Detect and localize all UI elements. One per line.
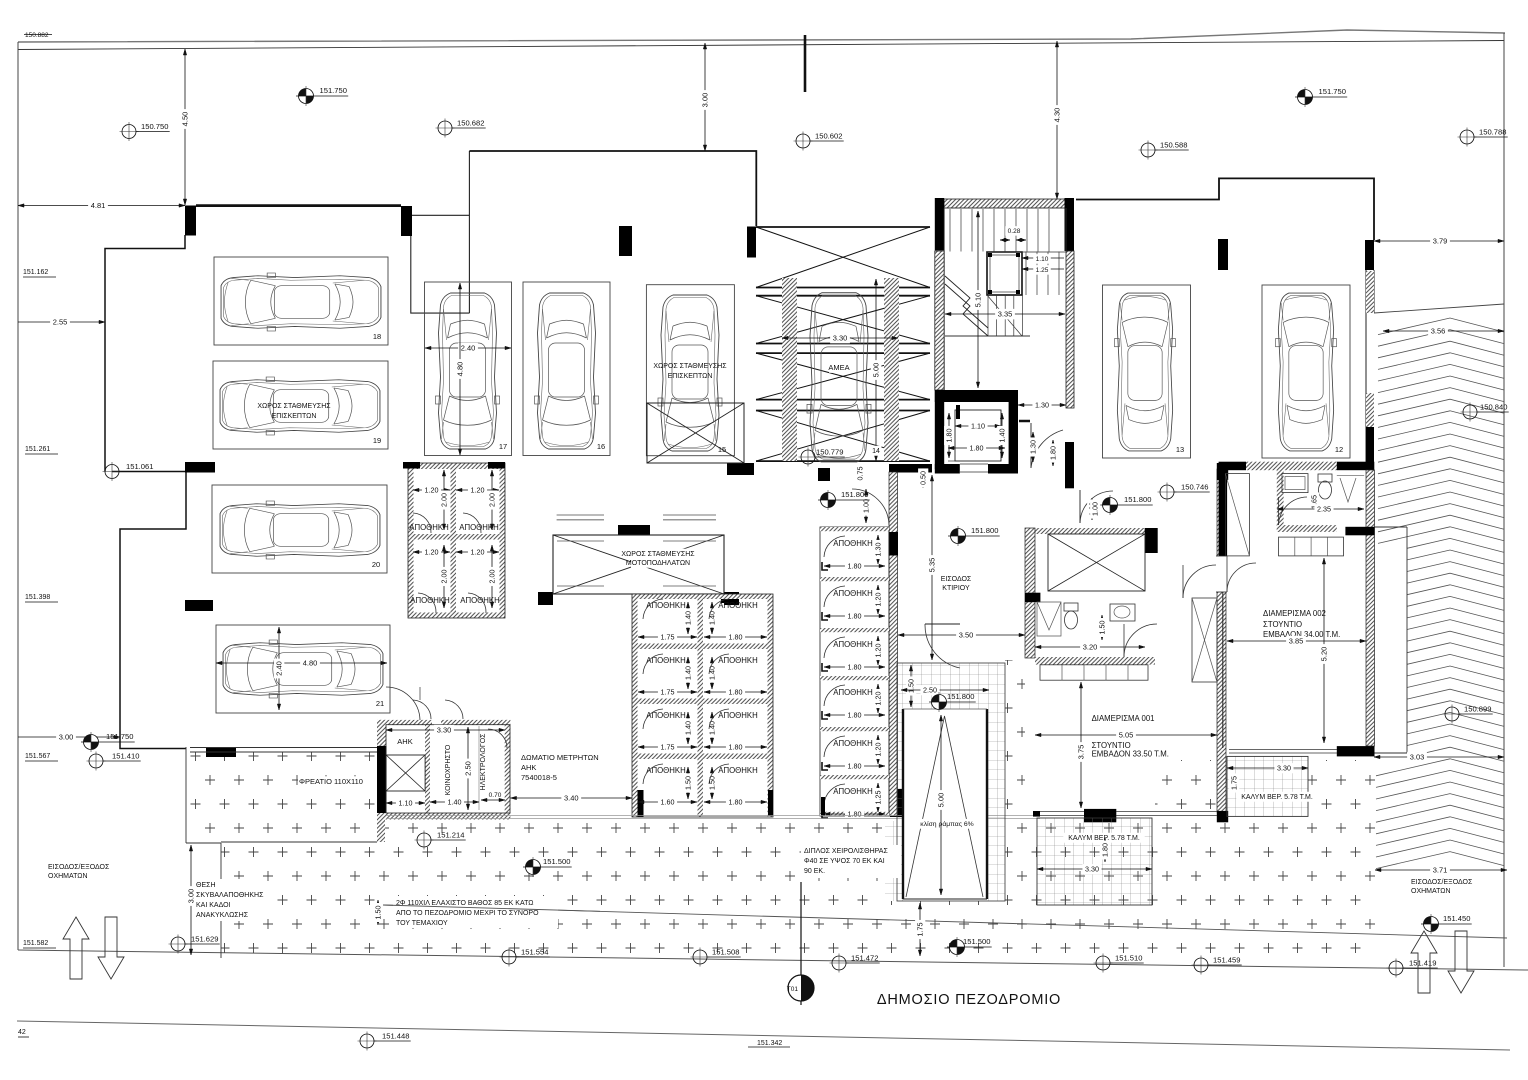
svg-text:3.30: 3.30 <box>1277 764 1291 773</box>
svg-text:151.500: 151.500 <box>963 937 990 946</box>
svg-text:150.682: 150.682 <box>457 119 484 128</box>
svg-text:ΑΠΟΘΗΚΗ: ΑΠΟΘΗΚΗ <box>718 601 757 610</box>
svg-text:ΔΙΑΜΕΡΙΣΜΑ 002: ΔΙΑΜΕΡΙΣΜΑ 002 <box>1263 609 1326 618</box>
svg-text:151.342: 151.342 <box>757 1040 782 1047</box>
svg-text:2.35: 2.35 <box>1317 505 1331 514</box>
svg-text:4.80: 4.80 <box>456 362 465 377</box>
svg-text:151.061: 151.061 <box>126 462 153 471</box>
svg-text:κλίση ράμπας 6%: κλίση ράμπας 6% <box>920 820 973 828</box>
svg-text:3.30: 3.30 <box>1085 865 1099 874</box>
svg-text:1.10: 1.10 <box>971 422 985 431</box>
svg-text:1.40: 1.40 <box>684 666 693 680</box>
svg-text:151.508: 151.508 <box>712 948 739 957</box>
svg-text:1.20: 1.20 <box>425 548 439 557</box>
svg-text:1.80: 1.80 <box>848 762 862 771</box>
svg-text:151.214: 151.214 <box>437 831 464 840</box>
svg-text:ΑΠΟΘΗΚΗ: ΑΠΟΘΗΚΗ <box>833 640 872 649</box>
svg-text:1.00: 1.00 <box>862 499 871 513</box>
svg-text:1.20: 1.20 <box>874 692 883 706</box>
svg-text:1.40: 1.40 <box>684 611 693 625</box>
svg-text:151.750: 151.750 <box>106 732 133 741</box>
svg-text:ΚΟΙΝΟΧΡΗΣΤΟ: ΚΟΙΝΟΧΡΗΣΤΟ <box>445 744 452 795</box>
svg-text:150.899: 150.899 <box>1464 705 1491 714</box>
svg-text:1.80: 1.80 <box>848 810 862 819</box>
svg-text:150.788: 150.788 <box>1479 128 1506 137</box>
svg-text:ΑΗΚ: ΑΗΚ <box>521 763 536 772</box>
svg-text:ΕΠΙΣΚΕΠΤΩΝ: ΕΠΙΣΚΕΠΤΩΝ <box>668 373 713 380</box>
svg-text:1.10: 1.10 <box>399 799 413 808</box>
svg-text:ΧΩΡΟΣ ΣΤΑΘΜΕΥΣΗΣ: ΧΩΡΟΣ ΣΤΑΘΜΕΥΣΗΣ <box>621 551 695 558</box>
svg-text:2.00: 2.00 <box>488 570 497 584</box>
svg-text:1.50: 1.50 <box>684 776 693 790</box>
svg-text:1.75: 1.75 <box>916 923 925 937</box>
svg-text:1.25: 1.25 <box>874 791 883 805</box>
svg-text:151.554: 151.554 <box>521 948 548 957</box>
svg-text:151.459: 151.459 <box>1213 956 1240 965</box>
svg-text:3.03: 3.03 <box>1410 753 1425 762</box>
svg-text:ΑΜΕΑ: ΑΜΕΑ <box>828 363 849 372</box>
svg-text:18: 18 <box>373 332 381 341</box>
svg-text:2.00: 2.00 <box>440 570 449 584</box>
svg-text:4.30: 4.30 <box>1053 108 1062 123</box>
svg-text:2.40: 2.40 <box>275 661 284 676</box>
svg-text:151.410: 151.410 <box>112 752 139 761</box>
svg-text:3.35: 3.35 <box>998 310 1013 319</box>
svg-text:1.30: 1.30 <box>1035 401 1049 410</box>
svg-text:3.79: 3.79 <box>1433 237 1448 246</box>
svg-text:17: 17 <box>499 442 507 451</box>
svg-text:151.500: 151.500 <box>543 857 570 866</box>
svg-text:0.70: 0.70 <box>489 792 502 799</box>
svg-text:151.261: 151.261 <box>25 446 50 453</box>
svg-text:151.510: 151.510 <box>1115 954 1142 963</box>
svg-text:5.00: 5.00 <box>937 793 946 808</box>
svg-text:150.750: 150.750 <box>141 122 168 131</box>
svg-text:ΑΠΟΘΗΚΗ: ΑΠΟΘΗΚΗ <box>833 739 872 748</box>
svg-text:20: 20 <box>372 560 380 569</box>
svg-text:ΑΠΟΘΗΚΗ: ΑΠΟΘΗΚΗ <box>833 688 872 697</box>
svg-text:4.81: 4.81 <box>91 201 106 210</box>
svg-text:1.40: 1.40 <box>998 429 1007 443</box>
svg-text:7540018-5: 7540018-5 <box>521 773 557 782</box>
svg-text:21: 21 <box>376 699 384 708</box>
svg-text:150.588: 150.588 <box>1160 141 1187 150</box>
svg-text:90 ΕΚ.: 90 ΕΚ. <box>804 868 825 875</box>
svg-text:3.30: 3.30 <box>833 334 848 343</box>
svg-text:ΔΙΠΛΟΣ ΧΕΙΡΟΛΙΣΘΗΡΑΣ: ΔΙΠΛΟΣ ΧΕΙΡΟΛΙΣΘΗΡΑΣ <box>804 848 888 855</box>
svg-text:151.750: 151.750 <box>320 86 347 95</box>
svg-text:151.472: 151.472 <box>851 954 878 963</box>
svg-text:3.20: 3.20 <box>1083 643 1098 652</box>
svg-text:16: 16 <box>597 442 605 451</box>
svg-text:3.56: 3.56 <box>1431 327 1446 336</box>
svg-text:1.30: 1.30 <box>874 543 883 557</box>
svg-text:1.50: 1.50 <box>374 906 383 920</box>
svg-text:5.35: 5.35 <box>928 558 937 573</box>
svg-text:ΑΗΚ: ΑΗΚ <box>397 737 412 746</box>
svg-text:151.750: 151.750 <box>1319 87 1346 96</box>
svg-text:4.50: 4.50 <box>181 112 190 127</box>
svg-text:1.80: 1.80 <box>729 743 743 752</box>
svg-text:19: 19 <box>373 436 381 445</box>
svg-text:1.00: 1.00 <box>1091 502 1100 516</box>
svg-text:ΑΠΟΘΗΚΗ: ΑΠΟΘΗΚΗ <box>460 596 499 605</box>
svg-text:1.20: 1.20 <box>874 593 883 607</box>
svg-text:151.800: 151.800 <box>947 692 974 701</box>
svg-text:ΑΠΟΘΗΚΗ: ΑΠΟΘΗΚΗ <box>833 787 872 796</box>
svg-text:ΔΗΜΟΣΙΟ ΠΕΖΟΔΡΟΜΙΟ: ΔΗΜΟΣΙΟ ΠΕΖΟΔΡΟΜΙΟ <box>877 992 1061 1008</box>
svg-text:3.71: 3.71 <box>1433 866 1448 875</box>
svg-text:150.746: 150.746 <box>1181 483 1208 492</box>
svg-text:ΑΝΑΚΥΚΛΩΣΗΣ: ΑΝΑΚΥΚΛΩΣΗΣ <box>196 912 249 919</box>
svg-text:ΕΙΣΟΔΟΣ/ΕΞΟΔΟΣ: ΕΙΣΟΔΟΣ/ΕΞΟΔΟΣ <box>1411 879 1473 886</box>
svg-text:150.602: 150.602 <box>815 132 842 141</box>
svg-text:ΘΕΣΗ: ΘΕΣΗ <box>196 882 216 889</box>
svg-text:151.567: 151.567 <box>25 753 50 760</box>
svg-text:T01: T01 <box>787 986 799 993</box>
svg-text:1.20: 1.20 <box>425 486 439 495</box>
svg-text:12: 12 <box>1335 445 1343 454</box>
svg-text:1.80: 1.80 <box>729 798 743 807</box>
svg-text:4.80: 4.80 <box>303 659 318 668</box>
svg-text:3.85: 3.85 <box>1289 637 1304 646</box>
svg-text:1.80: 1.80 <box>970 444 984 453</box>
svg-text:1.50: 1.50 <box>907 679 916 693</box>
svg-text:0.28: 0.28 <box>1008 228 1021 235</box>
svg-text:ΕΙΣΟΔΟΣ/ΕΞΟΔΟΣ: ΕΙΣΟΔΟΣ/ΕΞΟΔΟΣ <box>48 864 110 871</box>
svg-text:1.75: 1.75 <box>1230 776 1239 790</box>
svg-text:ΕΠΙΣΚΕΠΤΩΝ: ΕΠΙΣΚΕΠΤΩΝ <box>272 413 317 420</box>
svg-text:151.800: 151.800 <box>841 490 868 499</box>
svg-text:151.398: 151.398 <box>25 594 50 601</box>
svg-text:42: 42 <box>18 1029 26 1036</box>
svg-text:2.50: 2.50 <box>923 686 937 695</box>
svg-text:ΣΤΟΥΝΤΙΟ: ΣΤΟΥΝΤΙΟ <box>1263 620 1302 629</box>
svg-text:ΑΠΟ ΤΟ ΠΕΖΟΔΡΟΜΙΟ ΜΕΧΡΙ ΤΟ ΣΥΝ: ΑΠΟ ΤΟ ΠΕΖΟΔΡΟΜΙΟ ΜΕΧΡΙ ΤΟ ΣΥΝΟΡΟ <box>396 910 539 917</box>
svg-text:1.80: 1.80 <box>1049 446 1058 460</box>
svg-text:150.779: 150.779 <box>816 448 843 457</box>
svg-text:151.582: 151.582 <box>23 940 48 947</box>
svg-text:1.40: 1.40 <box>684 721 693 735</box>
svg-text:2.00: 2.00 <box>440 493 449 507</box>
svg-text:151.800: 151.800 <box>1124 495 1151 504</box>
svg-text:ΚΑΙ ΚΑΔΟΙ: ΚΑΙ ΚΑΔΟΙ <box>196 902 231 909</box>
svg-text:3.00: 3.00 <box>701 93 710 108</box>
svg-text:2.40: 2.40 <box>461 344 476 353</box>
svg-text:Φ40 ΣΕ ΥΨΟΣ 70 ΕΚ ΚΑΙ: Φ40 ΣΕ ΥΨΟΣ 70 ΕΚ ΚΑΙ <box>804 858 885 865</box>
svg-text:5.10: 5.10 <box>974 293 983 308</box>
svg-text:ΑΠΟΘΗΚΗ: ΑΠΟΘΗΚΗ <box>718 711 757 720</box>
svg-text:3.50: 3.50 <box>959 631 974 640</box>
svg-text:1.80: 1.80 <box>1101 843 1110 857</box>
svg-text:1.50: 1.50 <box>1098 621 1107 635</box>
svg-text:3.75: 3.75 <box>1077 745 1086 760</box>
svg-text:151.162: 151.162 <box>23 269 48 276</box>
svg-text:151.629: 151.629 <box>191 935 218 944</box>
svg-text:1.20: 1.20 <box>874 743 883 757</box>
svg-text:ΚΑΛΥΜ ΒΕΡ. 5.78 Τ.Μ.: ΚΑΛΥΜ ΒΕΡ. 5.78 Τ.Μ. <box>1241 794 1313 801</box>
svg-text:151.419: 151.419 <box>1409 959 1436 968</box>
svg-text:ΑΠΟΘΗΚΗ: ΑΠΟΘΗΚΗ <box>833 539 872 548</box>
svg-text:ΑΠΟΘΗΚΗ: ΑΠΟΘΗΚΗ <box>718 656 757 665</box>
svg-text:1.80: 1.80 <box>729 633 743 642</box>
svg-text:150.840: 150.840 <box>1480 403 1507 412</box>
svg-text:0.75: 0.75 <box>856 467 865 481</box>
svg-text:151.800: 151.800 <box>971 526 998 535</box>
svg-text:1.20: 1.20 <box>471 548 485 557</box>
svg-text:ΟΧΗΜΑΤΩΝ: ΟΧΗΜΑΤΩΝ <box>1411 888 1451 895</box>
svg-text:ΚΤΙΡΙΟΥ: ΚΤΙΡΙΟΥ <box>942 585 970 592</box>
svg-text:2.55: 2.55 <box>53 318 68 327</box>
svg-text:ΔΩΜΑΤΙΟ ΜΕΤΡΗΤΩΝ: ΔΩΜΑΤΙΟ ΜΕΤΡΗΤΩΝ <box>521 753 599 762</box>
svg-text:151.448: 151.448 <box>382 1032 409 1041</box>
svg-text:13: 13 <box>1176 445 1184 454</box>
svg-text:1.20: 1.20 <box>471 486 485 495</box>
svg-text:2.50: 2.50 <box>464 761 473 776</box>
svg-text:1.80: 1.80 <box>848 663 862 672</box>
svg-text:1.80: 1.80 <box>945 429 954 443</box>
svg-text:5.00: 5.00 <box>872 363 881 378</box>
svg-text:1.30: 1.30 <box>1029 440 1038 454</box>
svg-text:1.80: 1.80 <box>848 612 862 621</box>
svg-text:1.80: 1.80 <box>729 688 743 697</box>
svg-text:ΤΟΥ ΤΕΜΑΧΙΟΥ: ΤΟΥ ΤΕΜΑΧΙΟΥ <box>396 920 448 927</box>
svg-text:1.75: 1.75 <box>661 633 675 642</box>
svg-text:0.50: 0.50 <box>919 471 928 485</box>
svg-text:ΑΠΟΘΗΚΗ: ΑΠΟΘΗΚΗ <box>833 589 872 598</box>
svg-text:3.00: 3.00 <box>187 889 196 904</box>
svg-text:1.20: 1.20 <box>874 644 883 658</box>
svg-text:14: 14 <box>872 448 880 455</box>
svg-text:1.25: 1.25 <box>1036 267 1049 274</box>
svg-text:3.40: 3.40 <box>564 794 579 803</box>
svg-text:1.80: 1.80 <box>848 711 862 720</box>
svg-text:ΦΡΕΑΤΙΟ 110Χ110: ΦΡΕΑΤΙΟ 110Χ110 <box>299 777 363 786</box>
svg-text:151.450: 151.450 <box>1443 914 1470 923</box>
svg-text:3.00: 3.00 <box>59 733 74 742</box>
svg-text:1.10: 1.10 <box>1036 256 1049 263</box>
svg-text:1.40: 1.40 <box>448 798 462 807</box>
svg-text:1.75: 1.75 <box>661 743 675 752</box>
svg-text:5.20: 5.20 <box>1320 647 1329 662</box>
svg-text:1.80: 1.80 <box>848 562 862 571</box>
svg-text:ΔΙΑΜΕΡΙΣΜΑ 001: ΔΙΑΜΕΡΙΣΜΑ 001 <box>1092 714 1155 723</box>
svg-text:2.00: 2.00 <box>488 493 497 507</box>
svg-text:1.75: 1.75 <box>661 688 675 697</box>
svg-text:ΕΜΒΑΔΟΝ 33.50 Τ.Μ.: ΕΜΒΑΔΟΝ 33.50 Τ.Μ. <box>1092 750 1169 759</box>
svg-text:ΕΙΣΟΔΟΣ: ΕΙΣΟΔΟΣ <box>941 576 972 583</box>
svg-text:ΑΠΟΘΗΚΗ: ΑΠΟΘΗΚΗ <box>718 766 757 775</box>
svg-text:ΧΩΡΟΣ ΣΤΑΘΜΕΥΣΗΣ: ΧΩΡΟΣ ΣΤΑΘΜΕΥΣΗΣ <box>257 403 331 410</box>
svg-text:ΜΟΤΟΠΟΔΗΛΑΤΩΝ: ΜΟΤΟΠΟΔΗΛΑΤΩΝ <box>626 560 690 567</box>
svg-text:150.882: 150.882 <box>25 32 49 39</box>
svg-text:ΧΩΡΟΣ ΣΤΑΘΜΕΥΣΗΣ: ΧΩΡΟΣ ΣΤΑΘΜΕΥΣΗΣ <box>653 363 727 370</box>
svg-text:ΟΧΗΜΑΤΩΝ: ΟΧΗΜΑΤΩΝ <box>48 873 88 880</box>
svg-text:1.60: 1.60 <box>661 798 675 807</box>
svg-text:ΣΚΥΒΑΛΑΠΟΘΗΚΗΣ: ΣΚΥΒΑΛΑΠΟΘΗΚΗΣ <box>196 892 264 899</box>
svg-text:ΗΛΕΚΤΡΟΛΟΓΟΣ: ΗΛΕΚΤΡΟΛΟΓΟΣ <box>480 733 487 791</box>
svg-text:3.30: 3.30 <box>437 726 452 735</box>
svg-text:5.05: 5.05 <box>1119 731 1134 740</box>
